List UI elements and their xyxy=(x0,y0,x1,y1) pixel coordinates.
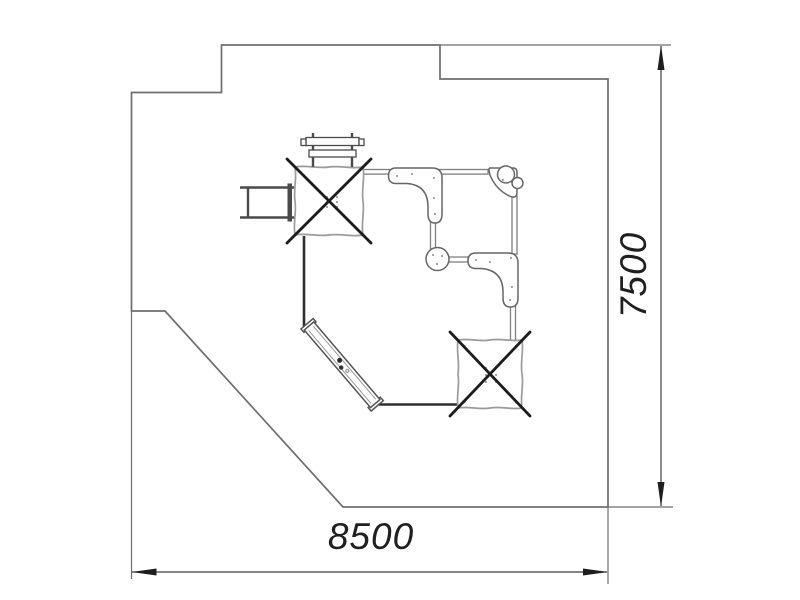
rail-panel-to-platform2 xyxy=(511,306,516,341)
site-boundary-outline xyxy=(132,45,609,507)
arrow-right-icon xyxy=(583,569,608,576)
width-dimension-label: 8500 xyxy=(328,516,414,557)
playground-structure xyxy=(240,133,530,416)
rail-panel-to-round-platform xyxy=(431,221,436,249)
arrow-down-icon xyxy=(658,482,665,507)
corner-pole-platform xyxy=(489,166,523,197)
curved-panel-1 xyxy=(389,168,443,223)
arrow-left-icon xyxy=(132,569,157,576)
round-platform xyxy=(426,248,449,271)
pole-circle-small-icon xyxy=(512,178,523,189)
slide-icon xyxy=(301,319,383,412)
arrow-up-icon xyxy=(658,45,665,70)
site-plan-canvas: 7500 8500 xyxy=(0,0,800,600)
dimension-annotations: 7500 8500 xyxy=(132,45,674,584)
entry-ladder-icon xyxy=(240,184,294,222)
rail-right xyxy=(512,196,517,254)
overhead-ladder-icon xyxy=(301,133,364,167)
height-dimension-label: 7500 xyxy=(613,232,654,318)
rail-round-platform-to-panel xyxy=(448,257,468,262)
curved-panel-2 xyxy=(468,253,518,307)
site-plan-drawing: 7500 8500 xyxy=(0,0,800,600)
